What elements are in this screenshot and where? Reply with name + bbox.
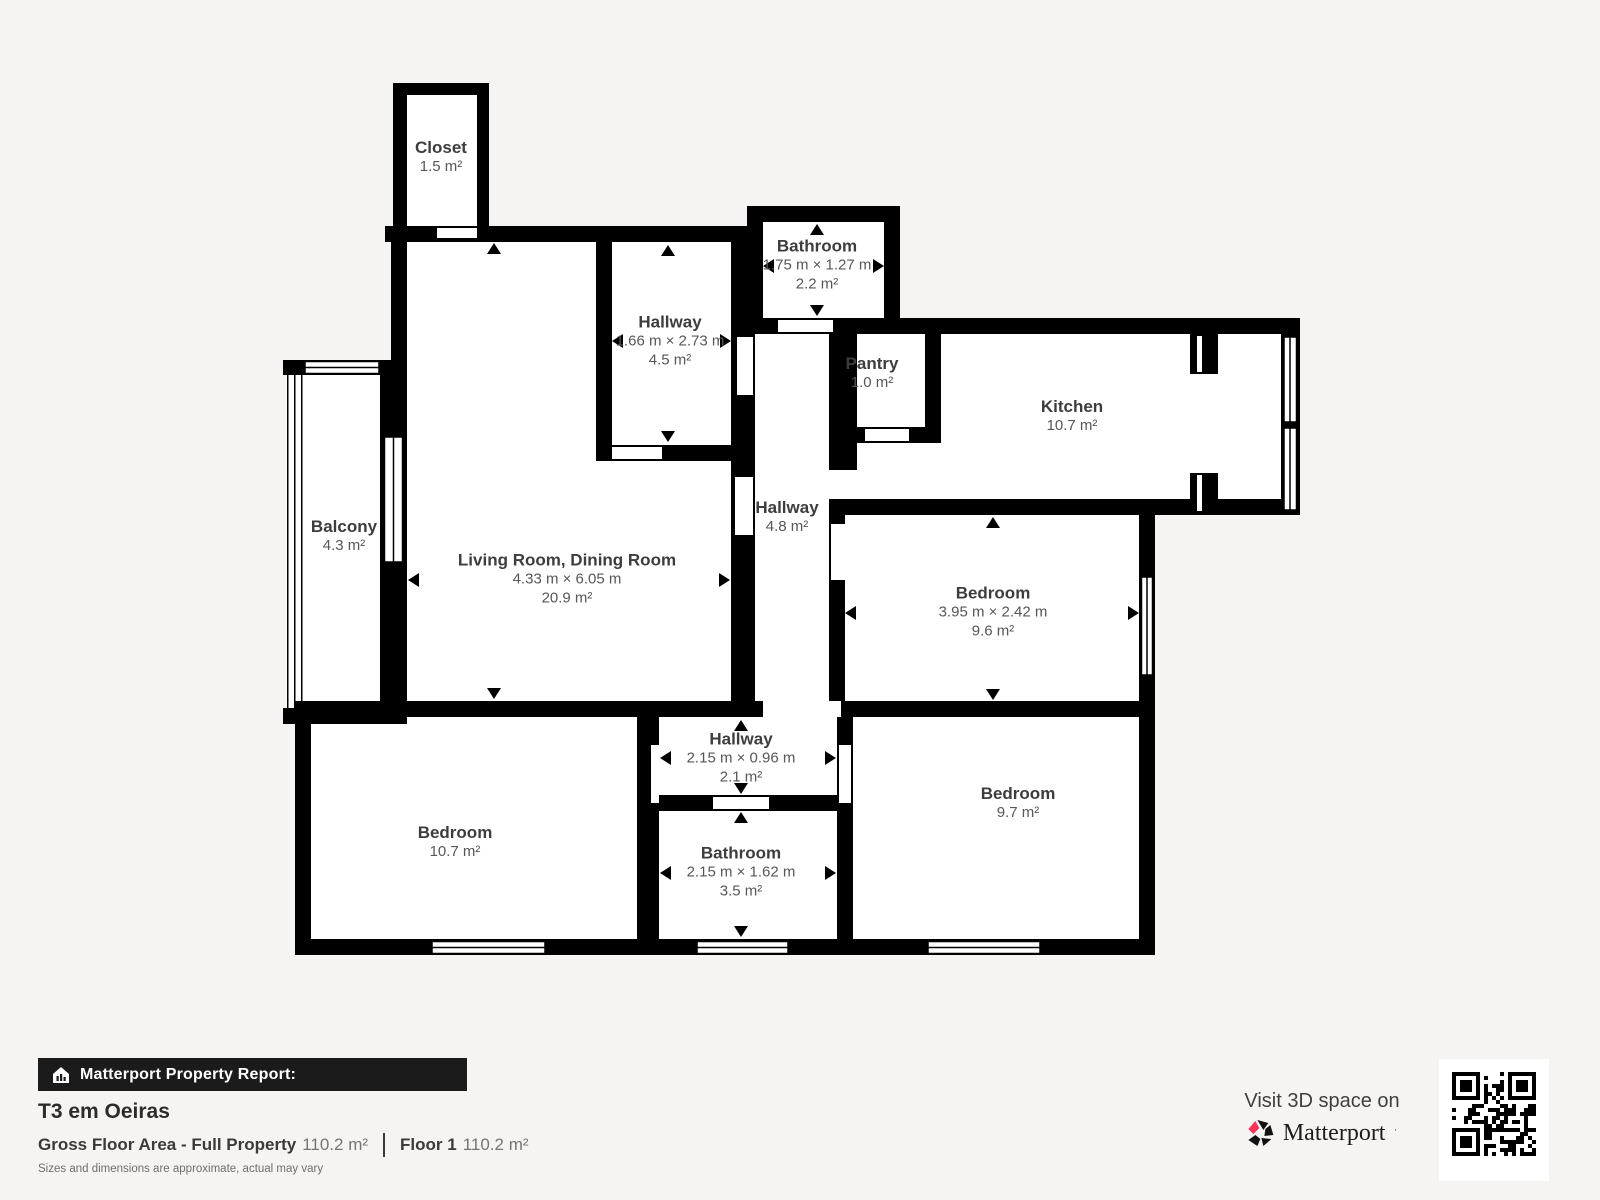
trademark-tick: ˈ: [1393, 1127, 1397, 1139]
visit-3d-text: Visit 3D space on: [1244, 1090, 1399, 1113]
matterport-logo-icon: [1247, 1119, 1275, 1147]
floor-label: Floor 1: [400, 1135, 457, 1155]
meta-divider: [383, 1133, 385, 1157]
floor-plan: [0, 0, 1600, 1010]
qr-code-pattern: [1452, 1072, 1536, 1156]
qr-code: [1439, 1059, 1549, 1181]
report-bar: Matterport Property Report:: [38, 1058, 467, 1091]
gross-area-value: 110.2 m²: [302, 1135, 368, 1155]
matterport-wordmark: Matterport: [1283, 1120, 1386, 1147]
property-title: T3 em Oeiras: [38, 1100, 170, 1124]
matterport-floor-plan-report: { "colors": { "background": "#f5f4f2", "…: [0, 0, 1600, 1200]
gross-area-label: Gross Floor Area - Full Property: [38, 1135, 296, 1155]
disclaimer-text: Sizes and dimensions are approximate, ac…: [38, 1163, 323, 1175]
house-icon: [52, 1066, 70, 1084]
report-bar-label: Matterport Property Report:: [80, 1066, 296, 1084]
matterport-brand-row: Matterportˈ: [1244, 1119, 1399, 1147]
area-summary: Gross Floor Area - Full Property 110.2 m…: [38, 1133, 529, 1157]
visit-3d-block: Visit 3D space on Matterportˈ: [1244, 1090, 1399, 1147]
floor-value: 110.2 m²: [463, 1135, 529, 1155]
